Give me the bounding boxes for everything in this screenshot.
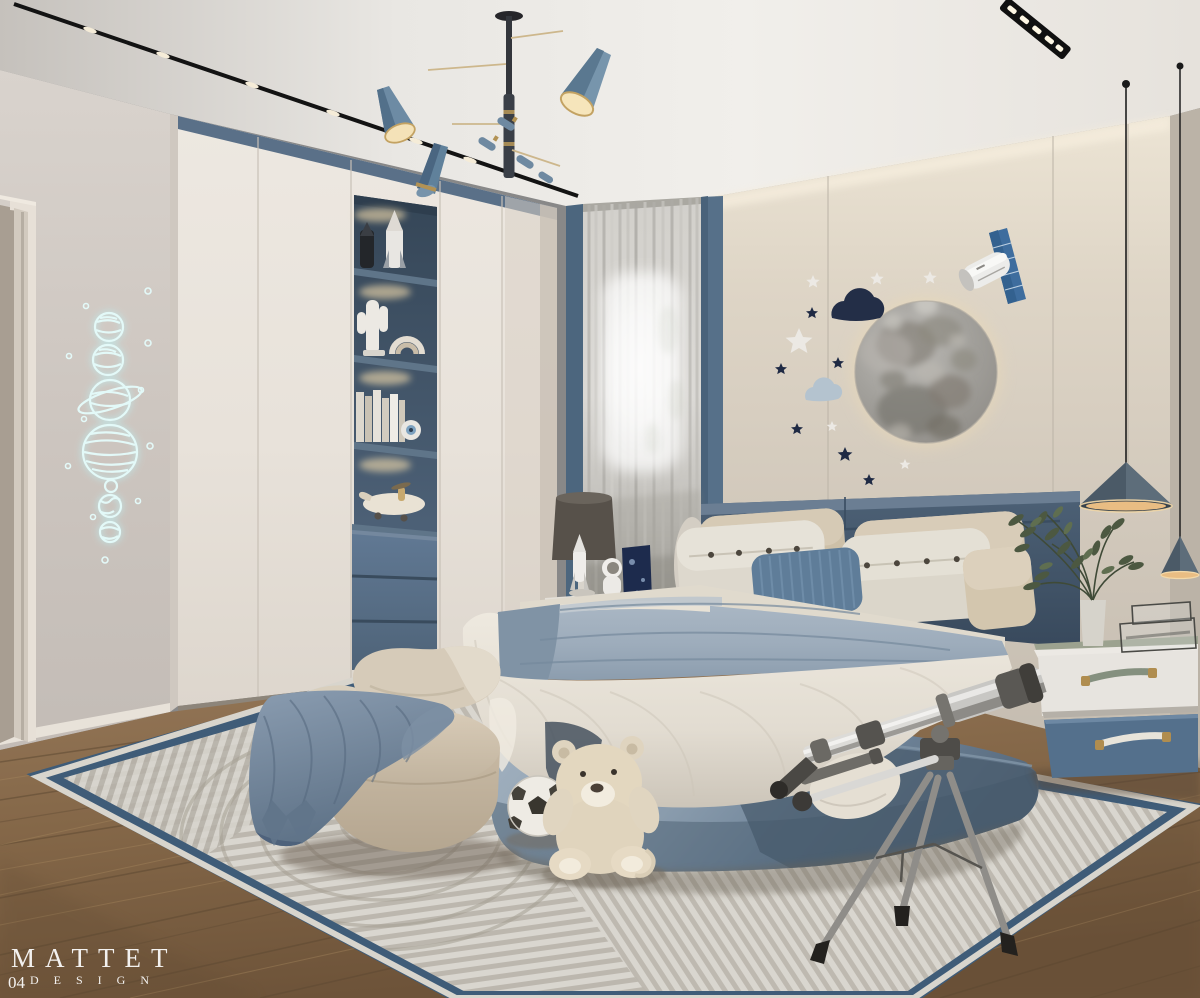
svg-text:04: 04 [8,973,26,992]
svg-text:MATTET: MATTET [11,943,177,973]
svg-text:DESIGN: DESIGN [30,973,164,987]
